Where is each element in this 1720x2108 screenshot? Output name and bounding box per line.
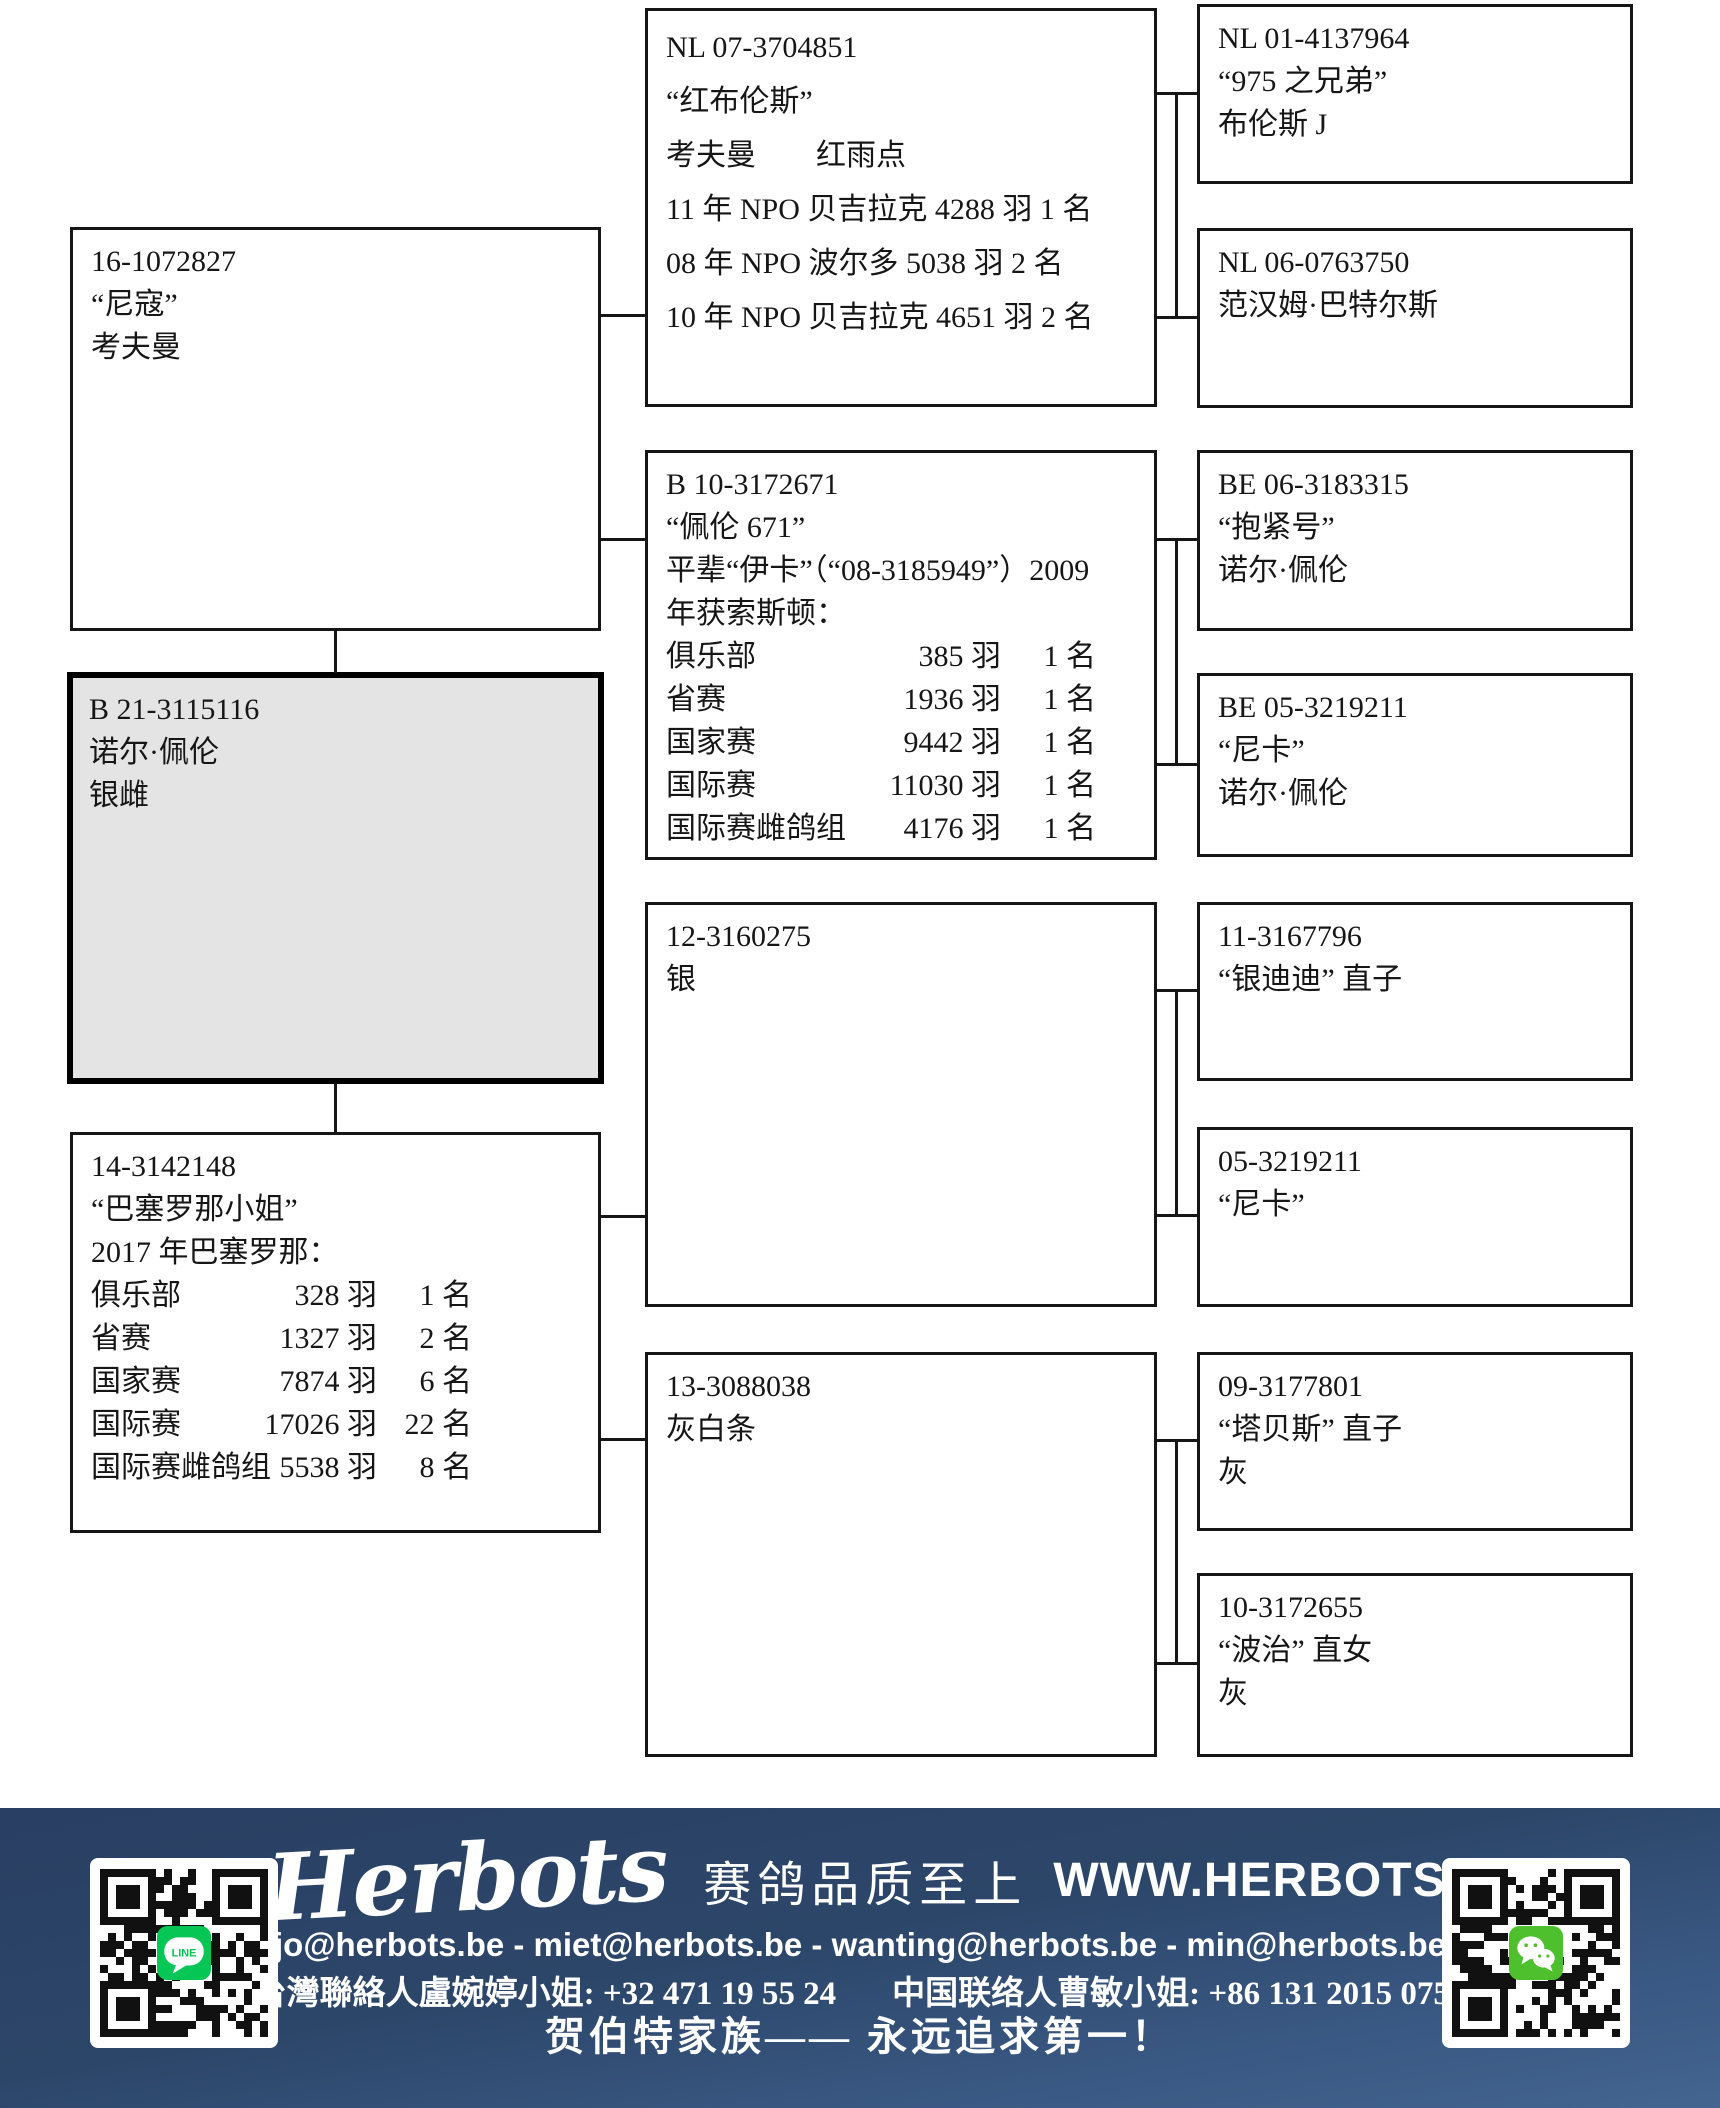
box-great-grandparent-8: 10-3172655“波治” 直女灰 [1197, 1573, 1633, 1757]
box-text-line: 布伦斯 J [1218, 103, 1612, 146]
box-text-line: 16-1072827 [91, 240, 580, 283]
connector-line [334, 1083, 337, 1133]
box-text-line: NL 07-3704851 [666, 21, 1136, 75]
result-row: 省赛1327 羽2 名 [91, 1317, 580, 1360]
connector-line [1157, 316, 1197, 319]
box-text-line: 08 年 NPO 波尔多 5038 羽 2 名 [666, 237, 1136, 291]
connector-line [601, 1215, 645, 1218]
box-text-line: 灰 [1218, 1672, 1612, 1715]
box-main-bird: B 21-3115116诺尔·佩伦银雌 [67, 672, 604, 1084]
brand-name: Herbots [265, 1822, 669, 1935]
box-dam-dam: 13-3088038灰白条 [645, 1352, 1157, 1757]
connector-line [601, 538, 645, 541]
result-cell: 7874 羽 [227, 1360, 377, 1403]
box-text-line: 14-3142148 [91, 1145, 580, 1188]
result-cell: 国际赛雌鸽组 [666, 807, 851, 850]
box-text-line: 12-3160275 [666, 915, 1136, 958]
box-text-line: 13-3088038 [666, 1365, 1136, 1408]
box-great-grandparent-6: 05-3219211“尼卡” [1197, 1127, 1633, 1307]
result-cell: 6 名 [377, 1360, 472, 1403]
box-text-line: “红布伦斯” [666, 75, 1136, 129]
result-cell: 328 羽 [227, 1274, 377, 1317]
box-text-line: 诺尔·佩伦 [89, 731, 582, 774]
result-cell: 4176 羽 [851, 807, 1001, 850]
box-sire: 16-1072827“尼寇”考夫曼 [70, 227, 601, 631]
wechat-icon [1509, 1926, 1563, 1980]
line-icon: LINE [157, 1926, 211, 1980]
result-cell: 省赛 [666, 678, 851, 721]
box-text-line: NL 06-0763750 [1218, 241, 1612, 284]
result-cell: 国际赛 [666, 764, 851, 807]
box-text-line: “塔贝斯” 直子 [1218, 1408, 1612, 1451]
box-text-line: B 21-3115116 [89, 688, 582, 731]
box-dam: 14-3142148“巴塞罗那小姐”2017 年巴塞罗那：俱乐部328 羽1 名… [70, 1132, 601, 1533]
connector-line [1157, 1662, 1197, 1665]
box-text-line: “尼卡” [1218, 1183, 1612, 1226]
result-row: 国际赛11030 羽1 名 [666, 764, 1136, 807]
result-cell: 俱乐部 [666, 635, 851, 678]
result-cell: 1327 羽 [227, 1317, 377, 1360]
box-sire-dam: B 10-3172671“佩伦 671”平辈“伊卡”（“08-3185949”）… [645, 450, 1157, 860]
connector-line [601, 1438, 645, 1441]
qr-code-wechat [1442, 1858, 1630, 2048]
box-text-line: 年获索斯顿： [666, 592, 1136, 635]
connector-line [1157, 1214, 1197, 1217]
box-text-line: “银迪迪” 直子 [1218, 958, 1612, 1001]
box-text-line: 灰 [1218, 1451, 1612, 1494]
box-text-line: 考夫曼 红雨点 [666, 129, 1136, 183]
box-text-line: “抱紧号” [1218, 506, 1612, 549]
result-cell: 1 名 [1001, 678, 1096, 721]
box-text-line: B 10-3172671 [666, 463, 1136, 506]
box-great-grandparent-4: BE 05-3219211“尼卡”诺尔·佩伦 [1197, 673, 1633, 857]
result-row: 省赛1936 羽1 名 [666, 678, 1136, 721]
box-text-line: 银 [666, 958, 1136, 1001]
pedigree-page: 16-1072827“尼寇”考夫曼 B 21-3115116诺尔·佩伦银雌 14… [0, 0, 1720, 2108]
box-text-line: 10 年 NPO 贝吉拉克 4651 羽 2 名 [666, 291, 1136, 345]
box-text-line: “波治” 直女 [1218, 1629, 1612, 1672]
result-cell: 国家赛 [666, 721, 851, 764]
result-cell: 1 名 [1001, 764, 1096, 807]
result-cell: 1 名 [1001, 635, 1096, 678]
box-text-line: BE 06-3183315 [1218, 463, 1612, 506]
box-great-grandparent-5: 11-3167796“银迪迪” 直子 [1197, 902, 1633, 1081]
box-sire-sire: NL 07-3704851“红布伦斯”考夫曼 红雨点11 年 NPO 贝吉拉克 … [645, 8, 1157, 407]
result-cell: 22 名 [377, 1403, 472, 1446]
result-row: 国家赛9442 羽1 名 [666, 721, 1136, 764]
box-text-line: BE 05-3219211 [1218, 686, 1612, 729]
result-cell: 1936 羽 [851, 678, 1001, 721]
box-great-grandparent-1: NL 01-4137964“975 之兄弟”布伦斯 J [1197, 4, 1633, 184]
result-cell: 1 名 [377, 1274, 472, 1317]
result-cell: 11030 羽 [851, 764, 1001, 807]
connector-line [1175, 1439, 1178, 1664]
result-row: 国际赛雌鸽组5538 羽8 名 [91, 1446, 580, 1489]
result-row: 俱乐部328 羽1 名 [91, 1274, 580, 1317]
result-cell: 5538 羽 [227, 1446, 377, 1489]
result-cell: 8 名 [377, 1446, 472, 1489]
result-cell: 俱乐部 [91, 1274, 227, 1317]
box-text-line: 2017 年巴塞罗那： [91, 1231, 580, 1274]
connector-line [334, 630, 337, 673]
result-cell: 省赛 [91, 1317, 227, 1360]
result-cell: 9442 羽 [851, 721, 1001, 764]
connector-line [1175, 989, 1178, 1216]
qr-code-line: LINE [90, 1858, 278, 2048]
connector-line [1157, 763, 1197, 766]
line-icon-label: LINE [172, 1948, 197, 1960]
box-text-line: 银雌 [89, 774, 582, 817]
connector-line [601, 314, 645, 317]
box-text-line: “巴塞罗那小姐” [91, 1188, 580, 1231]
box-text-line: 11 年 NPO 贝吉拉克 4288 羽 1 名 [666, 183, 1136, 237]
result-cell: 国家赛 [91, 1360, 227, 1403]
result-cell: 1 名 [1001, 721, 1096, 764]
box-text-line: “尼卡” [1218, 729, 1612, 772]
result-cell: 385 羽 [851, 635, 1001, 678]
box-dam-sire: 12-3160275银 [645, 902, 1157, 1307]
box-text-line: 诺尔·佩伦 [1218, 549, 1612, 592]
box-great-grandparent-2: NL 06-0763750范汉姆·巴特尔斯 [1197, 228, 1633, 408]
result-row: 俱乐部385 羽1 名 [666, 635, 1136, 678]
box-text-line: 11-3167796 [1218, 915, 1612, 958]
box-text-line: 考夫曼 [91, 326, 580, 369]
footer-slogan: 赛鸽品质至上 [703, 1845, 1027, 1915]
box-text-line: 05-3219211 [1218, 1140, 1612, 1183]
result-row: 国际赛雌鸽组4176 羽1 名 [666, 807, 1136, 850]
box-text-line: 平辈“伊卡”（“08-3185949”）2009 [666, 549, 1136, 592]
connector-line [1175, 92, 1178, 318]
box-great-grandparent-7: 09-3177801“塔贝斯” 直子灰 [1197, 1352, 1633, 1531]
box-text-line: 10-3172655 [1218, 1586, 1612, 1629]
box-text-line: NL 01-4137964 [1218, 17, 1612, 60]
result-cell: 国际赛雌鸽组 [91, 1446, 227, 1489]
box-text-line: 09-3177801 [1218, 1365, 1612, 1408]
result-cell: 1 名 [1001, 807, 1096, 850]
box-text-line: “975 之兄弟” [1218, 60, 1612, 103]
box-text-line: “佩伦 671” [666, 506, 1136, 549]
box-text-line: 灰白条 [666, 1408, 1136, 1451]
result-cell: 17026 羽 [227, 1403, 377, 1446]
result-row: 国际赛17026 羽22 名 [91, 1403, 580, 1446]
box-great-grandparent-3: BE 06-3183315“抱紧号”诺尔·佩伦 [1197, 450, 1633, 631]
result-cell: 国际赛 [91, 1403, 227, 1446]
box-text-line: 诺尔·佩伦 [1218, 772, 1612, 815]
result-cell: 2 名 [377, 1317, 472, 1360]
box-text-line: 范汉姆·巴特尔斯 [1218, 284, 1612, 327]
footer-banner: Herbots 赛鸽品质至上 WWW.HERBOTS.BE jo@herbots… [0, 1808, 1720, 2108]
result-row: 国家赛7874 羽6 名 [91, 1360, 580, 1403]
connector-line [1175, 538, 1178, 765]
box-text-line: “尼寇” [91, 283, 580, 326]
